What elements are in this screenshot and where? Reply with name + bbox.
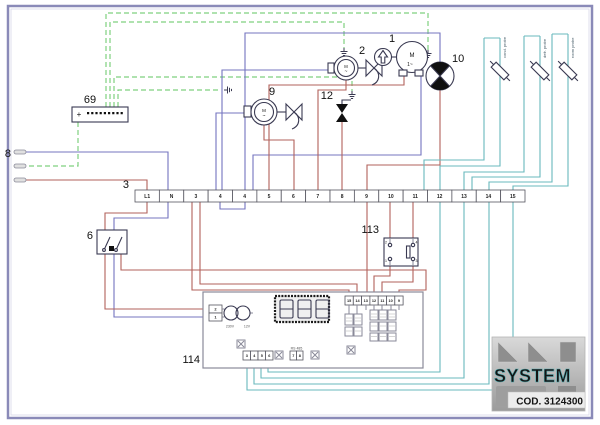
connector-69-pins — [87, 112, 123, 114]
connector-cell-label: 5 — [261, 354, 263, 358]
connector-cell-label: 10 — [388, 194, 394, 200]
earth-symbol-fan9 — [224, 87, 232, 94]
relay-block — [370, 333, 378, 341]
ref-12: 12 — [321, 90, 333, 102]
schematic-page: 69 + 8 3 L1N34456789101112131415 6 9 M ~… — [0, 0, 600, 425]
relay-block — [354, 314, 362, 325]
fan9-motor-phase: ~ — [263, 114, 266, 120]
relay-block — [388, 310, 396, 320]
transformer-primary-label: 230V — [226, 325, 235, 329]
fan2-terminal-box — [328, 63, 334, 73]
connector-cell-label: L1 — [144, 194, 150, 200]
switch-6-indicator — [109, 246, 114, 251]
earth-wire-fan9 — [118, 90, 220, 107]
relay-block — [370, 322, 378, 331]
switch-113-pin4-label: 4 — [416, 241, 418, 245]
switch-6: 6 — [87, 230, 127, 254]
switch-6-pivot-2 — [115, 249, 118, 252]
connector-cell-label: 7 — [316, 194, 319, 200]
relay-block — [379, 322, 387, 331]
brand-logo: SYSTEM COD. 3124300 — [492, 337, 585, 411]
fan-motor-9: 9 M ~ — [244, 86, 302, 129]
relay-block — [345, 314, 353, 325]
relay-block — [370, 310, 378, 320]
relay-blocks — [345, 310, 396, 341]
supply-lug-line — [14, 150, 26, 154]
wire-switch6-neutral — [114, 202, 168, 230]
connector-cell-label: 13 — [461, 194, 467, 200]
wire-compressor-line — [269, 76, 404, 190]
wire-term3-pin15 — [192, 202, 349, 296]
connector-cell-label: 8 — [299, 354, 301, 358]
room-probe-label: room probe — [570, 37, 575, 58]
defr-probe-label: defr. probe — [542, 38, 547, 58]
wire-switch6-line — [105, 202, 147, 230]
connector-cell-label: 8 — [341, 194, 344, 200]
relay-block — [388, 322, 396, 331]
compressor-motor-phase: 1~ — [407, 62, 413, 68]
probes: cond. probe defr. probe room probe — [488, 36, 581, 83]
wire-room-probe — [489, 34, 568, 190]
rs485-label: RS 485 — [291, 347, 303, 351]
connector-cell-label: 15 — [510, 194, 516, 200]
connector-cell-label: 14 — [486, 194, 492, 200]
wire-term3-pin14 — [200, 202, 357, 296]
connector-cell-label: N — [170, 194, 174, 200]
ref-1: 1 — [389, 33, 395, 45]
earth-wire-fan2 — [110, 22, 344, 107]
relay-block — [379, 333, 387, 341]
relay-block — [354, 327, 362, 336]
compressor-terminal-right — [415, 70, 423, 76]
connector-cell-label: 10 — [389, 299, 393, 303]
wire-jumper-4-4 — [220, 202, 245, 209]
connector-cell-label: 11 — [413, 194, 419, 200]
board-bottom-connector: 3456 — [243, 351, 273, 360]
relay-block — [388, 333, 396, 341]
rs485-connector: 78 — [290, 351, 303, 360]
terminal-strip: L1N34456789101112131415 — [135, 190, 525, 202]
neutral-wires — [26, 33, 440, 317]
switch-113-pin1-label: 1 — [385, 259, 387, 263]
connector-cell-label: 9 — [398, 299, 400, 303]
valve-10: 10 — [426, 53, 464, 90]
earth-symbol-fan2 — [341, 48, 348, 56]
connector-cell-label: 15 — [347, 299, 351, 303]
connector-69-polarity: + — [77, 110, 82, 119]
connector-cell-label: 9 — [365, 194, 368, 200]
switch-113-pin2-label: 2 — [385, 241, 387, 245]
connector-cell-label: 12 — [372, 299, 376, 303]
ref-69: 69 — [84, 94, 96, 106]
wiring-diagram: 69 + 8 3 L1N34456789101112131415 6 9 M ~… — [0, 0, 600, 425]
earth-wire-supply — [26, 122, 78, 166]
connector-cell-label: 7 — [292, 354, 294, 358]
wire-fan9-neutral — [216, 113, 244, 190]
supply-lug-neutral — [14, 178, 26, 182]
connector-cell-label: 3 — [195, 194, 198, 200]
solenoid-12: 12 — [321, 90, 351, 122]
logo-shape-block — [560, 342, 576, 362]
ref-9: 9 — [269, 86, 275, 98]
connector-cell-label: 3 — [246, 354, 248, 358]
ref-3: 3 — [123, 179, 129, 191]
fan-motor-2: 2 M ~ — [328, 45, 382, 85]
logo-brand-text: SYSTEM — [494, 366, 571, 386]
fan9-terminal-box — [244, 106, 251, 117]
connector-cell-label: 4 — [243, 194, 246, 200]
connector-cell-label: 11 — [380, 299, 384, 303]
transformer-secondary-label: 12V — [244, 325, 251, 329]
switch-113-pin3-label: 3 — [416, 259, 418, 263]
fan2-motor-phase: ~ — [345, 69, 348, 75]
switch-6-pivot-1 — [103, 249, 106, 252]
board-top-connector: 1514131211109 — [345, 296, 403, 305]
earth-wire-valve12 — [114, 77, 352, 107]
wire-fan2-neutral — [222, 70, 334, 190]
fan9-motor-letter: M — [262, 108, 266, 113]
ref-6: 6 — [87, 230, 93, 242]
connector-cell-label: 4 — [219, 194, 222, 200]
connector-cell-label: 12 — [437, 194, 443, 200]
relay-block — [345, 327, 353, 336]
wire-defr-probe — [464, 36, 540, 190]
relay-block — [379, 310, 387, 320]
ref-10: 10 — [452, 53, 464, 65]
connector-cell-label: 6 — [292, 194, 295, 200]
connector-cell-label: 13 — [364, 299, 368, 303]
connector-cell-label: 5 — [268, 194, 271, 200]
board-input-connector: 21 — [209, 305, 222, 321]
wire-compressor-neutral — [253, 76, 421, 190]
earth-symbol-valve12 — [349, 91, 356, 99]
logo-code-text: COD. 3124300 — [516, 397, 583, 408]
cond-probe-label: cond. probe — [502, 36, 507, 58]
wire-board-neutral — [114, 254, 209, 317]
compressor-terminal-left — [399, 70, 407, 76]
wire-valve10-line — [367, 90, 440, 190]
solenoid-12-icon — [336, 104, 348, 122]
control-board-114: 114 21 230V 12V 1514131211109 — [182, 292, 423, 368]
connector-cell-label: 6 — [268, 354, 270, 358]
compressor-motor-letter: M — [410, 53, 415, 59]
supply-lug-earth — [14, 164, 26, 168]
ref-114: 114 — [182, 354, 200, 366]
solenoid-12-earth-lead — [342, 100, 351, 104]
ref-2: 2 — [359, 45, 365, 57]
ref-113: 113 — [361, 224, 379, 236]
ref-8: 8 — [5, 148, 11, 160]
connector-69: 69 + — [72, 94, 128, 122]
